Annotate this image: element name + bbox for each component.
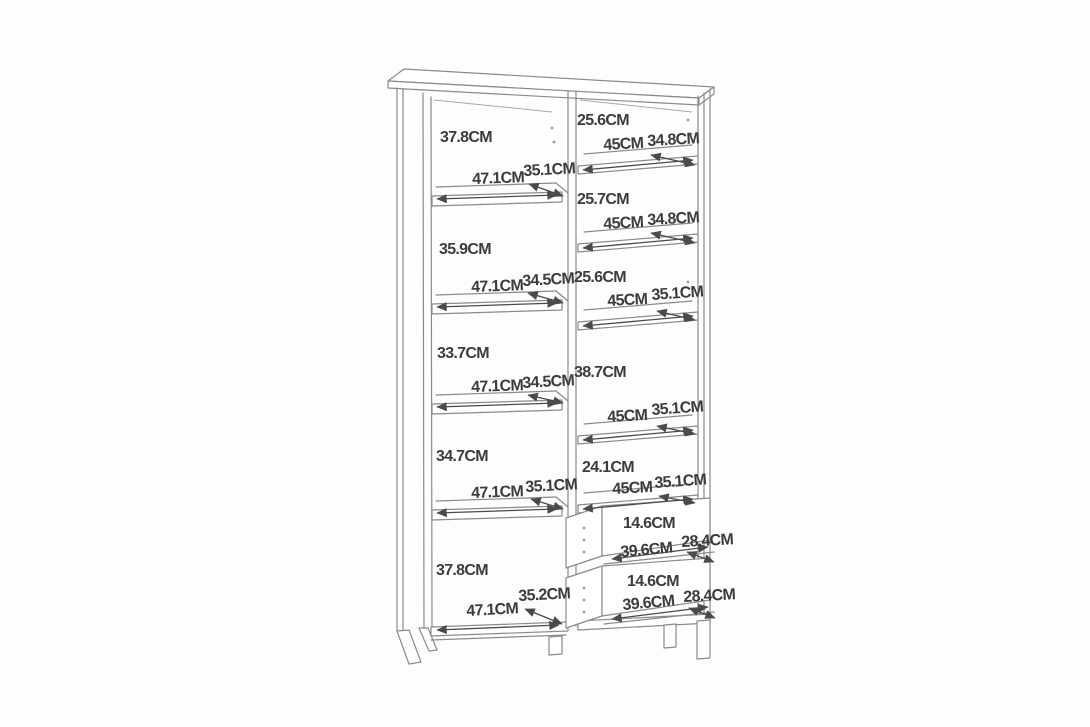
drawer1-depth: 28.4CM [681,532,734,551]
drawer1-height: 14.6CM [623,516,675,532]
left-comp4-depth: 35.1CM [525,477,578,496]
left-comp5-width: 47.1CM [466,601,519,620]
right-comp1-depth: 34.8CM [647,131,700,150]
left-comp4-width: 47.1CM [471,484,523,502]
right-comp5-depth: 35.1CM [654,472,707,492]
left-comp1-depth: 35.1CM [523,161,576,180]
right-comp5-height: 24.1CM [582,460,634,476]
left-comp4-height: 34.7CM [436,449,488,465]
right-comp3-depth: 35.1CM [651,284,704,304]
left-comp2-depth: 34.5CM [522,271,575,290]
right-comp4-height: 38.7CM [574,365,626,381]
left-comp5-height: 37.8CM [436,563,488,579]
drawer2-height: 14.6CM [627,574,679,590]
right-comp1-height: 25.6CM [577,113,629,129]
right-comp2-depth: 34.8CM [647,210,700,229]
left-comp1-width: 47.1CM [472,170,524,188]
right-comp2-width: 45CM [603,215,644,233]
right-comp2-height: 25.7CM [577,192,629,208]
dimension-labels: 37.8CM35.9CM33.7CM34.7CM37.8CM47.1CM47.1… [0,0,1090,727]
right-comp1-width: 45CM [603,136,644,154]
left-comp5-depth: 35.2CM [518,586,571,605]
left-comp2-height: 35.9CM [439,242,491,258]
drawer2-width: 39.6CM [622,593,675,613]
right-comp3-height: 25.6CM [574,270,626,286]
left-comp1-height: 37.8CM [440,130,492,146]
right-comp4-width: 45CM [607,408,648,426]
left-comp3-width: 47.1CM [471,378,523,396]
right-comp5-width: 45CM [612,480,653,498]
drawer2-depth: 28.4CM [683,587,736,606]
left-comp3-depth: 34.5CM [522,373,575,392]
right-comp3-width: 45CM [607,292,648,310]
left-comp2-width: 47.1CM [471,278,523,296]
page-background: 37.8CM35.9CM33.7CM34.7CM37.8CM47.1CM47.1… [0,0,1090,727]
drawer1-width: 39.6CM [620,540,673,560]
left-comp3-height: 33.7CM [437,346,489,362]
right-comp4-depth: 35.1CM [651,399,704,419]
